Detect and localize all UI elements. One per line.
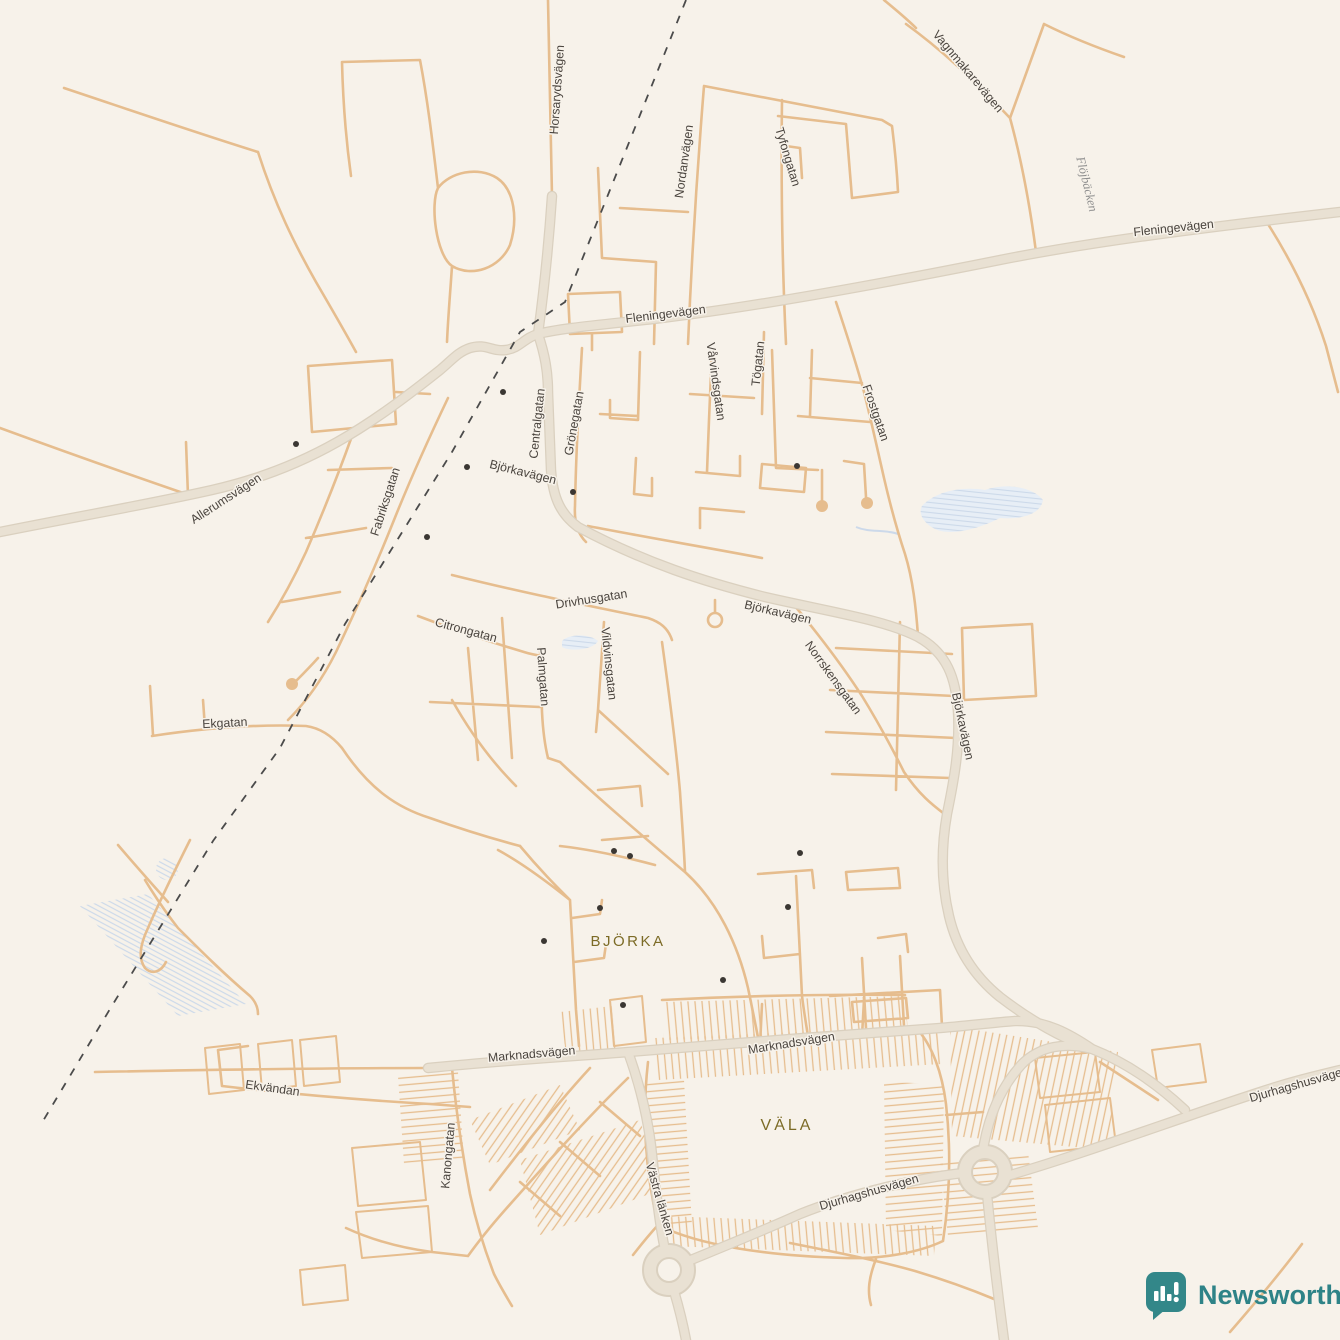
place-label-bjorka: BJÖRKA — [590, 932, 665, 950]
street-map: Horsarydsvägen Vagnmakarevägen Flöjbäcke… — [0, 0, 1340, 1340]
newsworthy-brand-text: Newsworthy — [1198, 1280, 1340, 1310]
road-label-ekgatan: Ekgatan — [202, 715, 248, 731]
map-canvas: Horsarydsvägen Vagnmakarevägen Flöjbäcke… — [0, 0, 1340, 1340]
place-label-vala: VÄLA — [761, 1116, 814, 1134]
